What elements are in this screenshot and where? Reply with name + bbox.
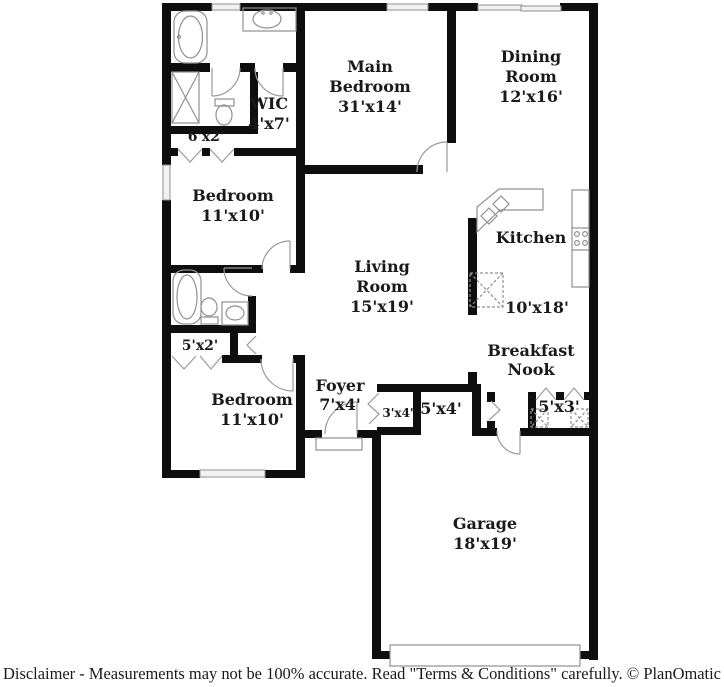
breakfast-name-2: Nook [507, 360, 555, 379]
door-garage-entry [497, 431, 520, 454]
label-main-bedroom: Main Bedroom 31'x14' [329, 57, 411, 116]
tub-hall-bath [173, 270, 201, 324]
bedroom-upper-dims: 11'x10' [201, 206, 265, 225]
label-breakfast-nook: Breakfast Nook [487, 341, 575, 379]
door-bedroom-lower [261, 359, 293, 391]
label-bedroom-lower: Bedroom 11'x10' [211, 390, 293, 429]
main-bedroom-dims: 31'x14' [338, 97, 402, 116]
main-bedroom-name-2: Bedroom [329, 77, 411, 96]
garage-dims: 18'x19' [453, 534, 517, 553]
label-foyer: Foyer 7'x4' [315, 376, 365, 414]
dining-name-2: Room [505, 67, 557, 86]
toilet-main [215, 99, 234, 125]
label-bedroom-upper: Bedroom 11'x10' [192, 186, 274, 225]
kitchen-corner-counter-sink [477, 189, 543, 232]
shower [172, 72, 199, 123]
label-living-room: Living Room 15'x19' [350, 257, 414, 316]
main-bedroom-name-1: Main [347, 57, 393, 76]
floor-plan-page: Main Bedroom 31'x14' Dining Room 12'x16'… [0, 0, 724, 687]
kitchen-range-counter [572, 190, 589, 287]
toilet-hall-bath [201, 298, 218, 324]
bedroom-lower-dims: 11'x10' [220, 410, 284, 429]
dining-dims: 12'x16' [499, 87, 563, 106]
vanity-sink-hall [222, 302, 248, 325]
label-wic: WIC 4'x7' [248, 94, 290, 133]
wic-dims: 4'x7' [248, 114, 290, 133]
garden-tub [174, 11, 207, 63]
garage-overhead-door [390, 645, 580, 666]
bifold-closet-5x2-right [200, 356, 222, 369]
floor-plan-drawing: Main Bedroom 31'x14' Dining Room 12'x16'… [0, 0, 724, 687]
living-dims: 15'x19' [350, 297, 414, 316]
bedroom-upper-name: Bedroom [192, 186, 274, 205]
wic-name: WIC [249, 94, 288, 113]
label-kitchen: Kitchen 10'x18' [496, 228, 569, 317]
foyer-name: Foyer [315, 376, 365, 395]
door-bedroom-upper [262, 241, 290, 269]
window-dining-left [478, 5, 522, 10]
dining-name-1: Dining [501, 47, 561, 66]
laundry-5x3-dims: 5'x3' [538, 397, 580, 416]
bifold-closet-5x2-left [172, 356, 196, 369]
window-bath-top [212, 4, 240, 10]
window-main-bedroom [387, 4, 428, 10]
kitchen-dims: 10'x18' [505, 298, 569, 317]
bedroom-lower-name: Bedroom [211, 390, 293, 409]
closet-3x4-dims: 3'x4' [382, 406, 413, 420]
window-bedroom-lower [200, 470, 265, 477]
door-wic [255, 68, 283, 96]
bifold-closet-3x4 [368, 393, 379, 424]
living-name-1: Living [354, 257, 410, 276]
garage-name: Garage [453, 514, 517, 533]
foyer-dims: 7'x4' [319, 395, 361, 414]
window-dining-right [521, 6, 561, 11]
disclaimer-text: Disclaimer - Measurements may not be 100… [3, 664, 721, 683]
front-door-threshold [316, 438, 362, 450]
closet-6x2-dims: 6'x2' [188, 129, 224, 145]
window-bedroom-upper [163, 165, 170, 200]
bifold-closet-6x2-right [210, 149, 234, 162]
bifold-linen-closet [247, 336, 256, 354]
kitchen-name: Kitchen [496, 228, 567, 247]
nook-5x4-dims: 5'x4' [420, 399, 462, 418]
living-name-2: Room [356, 277, 408, 296]
vanity-sink-main [243, 8, 296, 31]
breakfast-name-1: Breakfast [487, 341, 575, 360]
label-garage: Garage 18'x19' [453, 514, 517, 553]
label-dining-room: Dining Room 12'x16' [499, 47, 563, 106]
bifold-closet-6x2-left [178, 149, 202, 162]
door-garage-nook [489, 401, 500, 420]
door-main-bath [212, 68, 240, 96]
closet-5x2-dims: 5'x2' [182, 338, 218, 354]
